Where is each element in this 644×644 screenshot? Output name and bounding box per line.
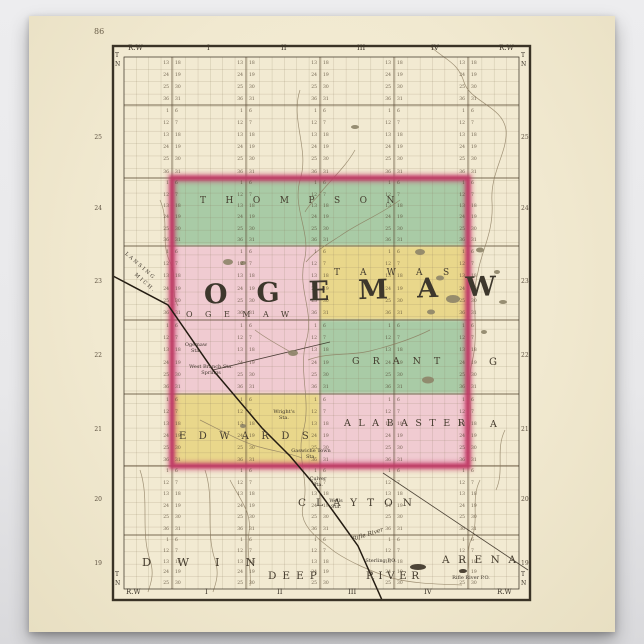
county-map <box>0 0 644 644</box>
scene: 2525242423232222212120201919131813181318… <box>0 0 644 644</box>
